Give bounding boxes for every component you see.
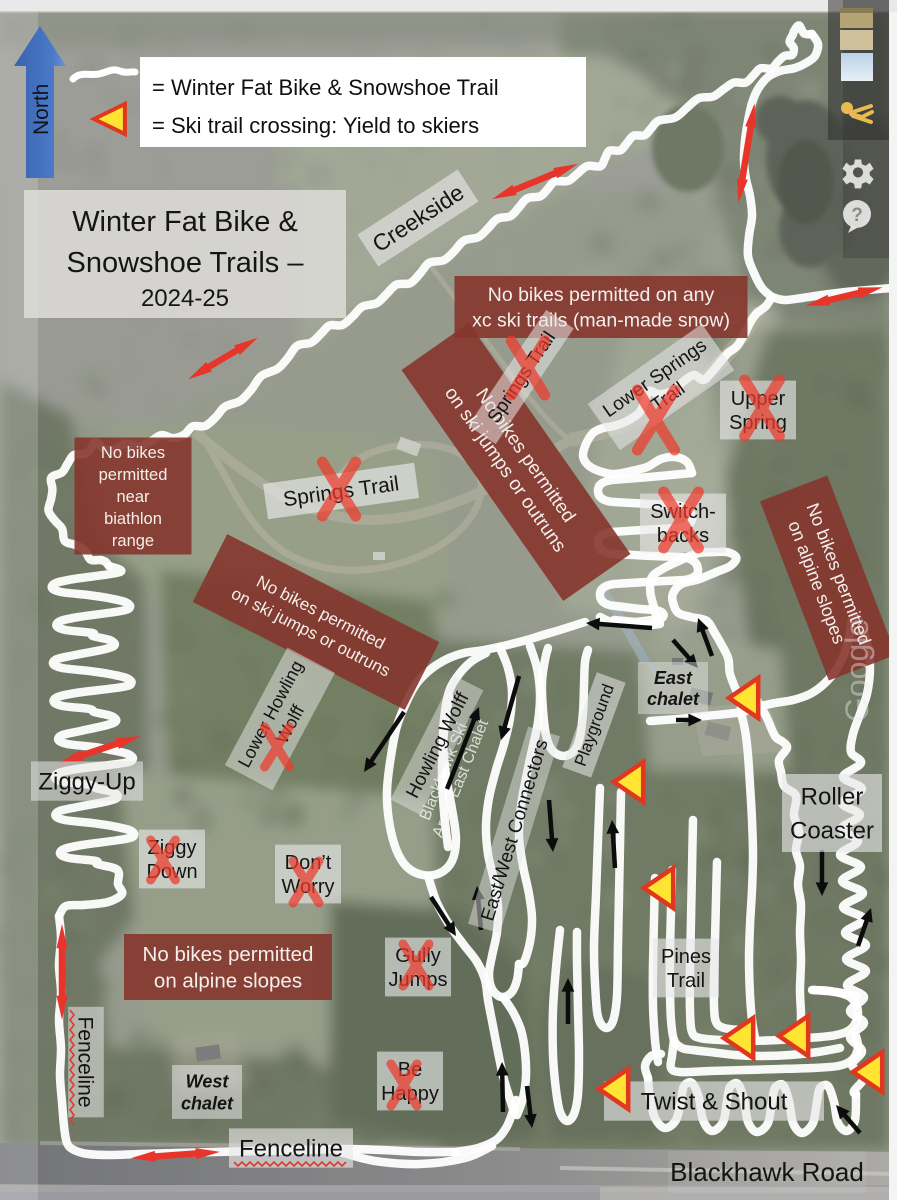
svg-text:Fenceline: Fenceline bbox=[74, 1016, 97, 1107]
svg-text:= Winter Fat Bike & Snowshoe: = Winter Fat Bike & Snowshoe Trail bbox=[152, 75, 499, 100]
svg-text:Google: Google bbox=[839, 619, 875, 722]
svg-text:North: North bbox=[30, 84, 53, 135]
svg-text:Fenceline: Fenceline bbox=[239, 1135, 343, 1162]
svg-text:Twist & Shout: Twist & Shout bbox=[641, 1088, 788, 1115]
svg-text:Blackhawk Road: Blackhawk Road bbox=[670, 1157, 864, 1187]
svg-text:?: ? bbox=[851, 205, 863, 226]
svg-text:Ziggy-Up: Ziggy-Up bbox=[38, 768, 135, 795]
svg-text:= Ski trail crossing: Yield to: = Ski trail crossing: Yield to skiers bbox=[152, 113, 479, 138]
